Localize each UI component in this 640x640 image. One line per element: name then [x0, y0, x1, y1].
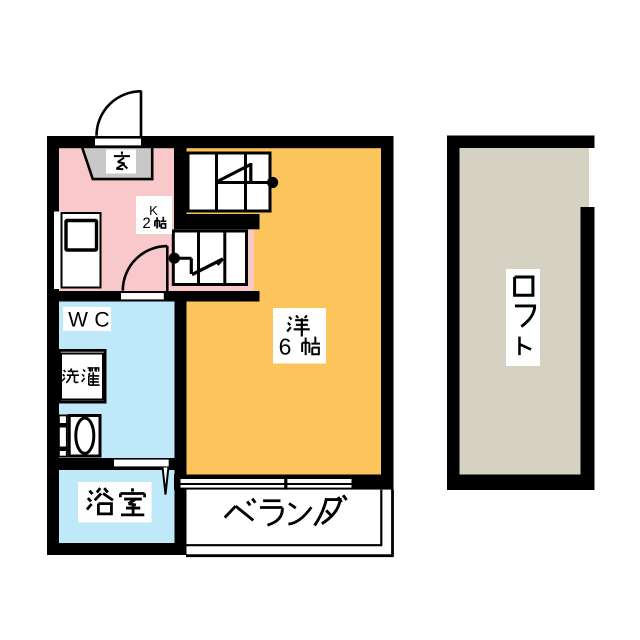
svg-text:C: C: [94, 309, 109, 332]
svg-text:6: 6: [279, 334, 292, 360]
svg-text:W: W: [68, 309, 88, 332]
svg-text:2: 2: [142, 215, 150, 232]
